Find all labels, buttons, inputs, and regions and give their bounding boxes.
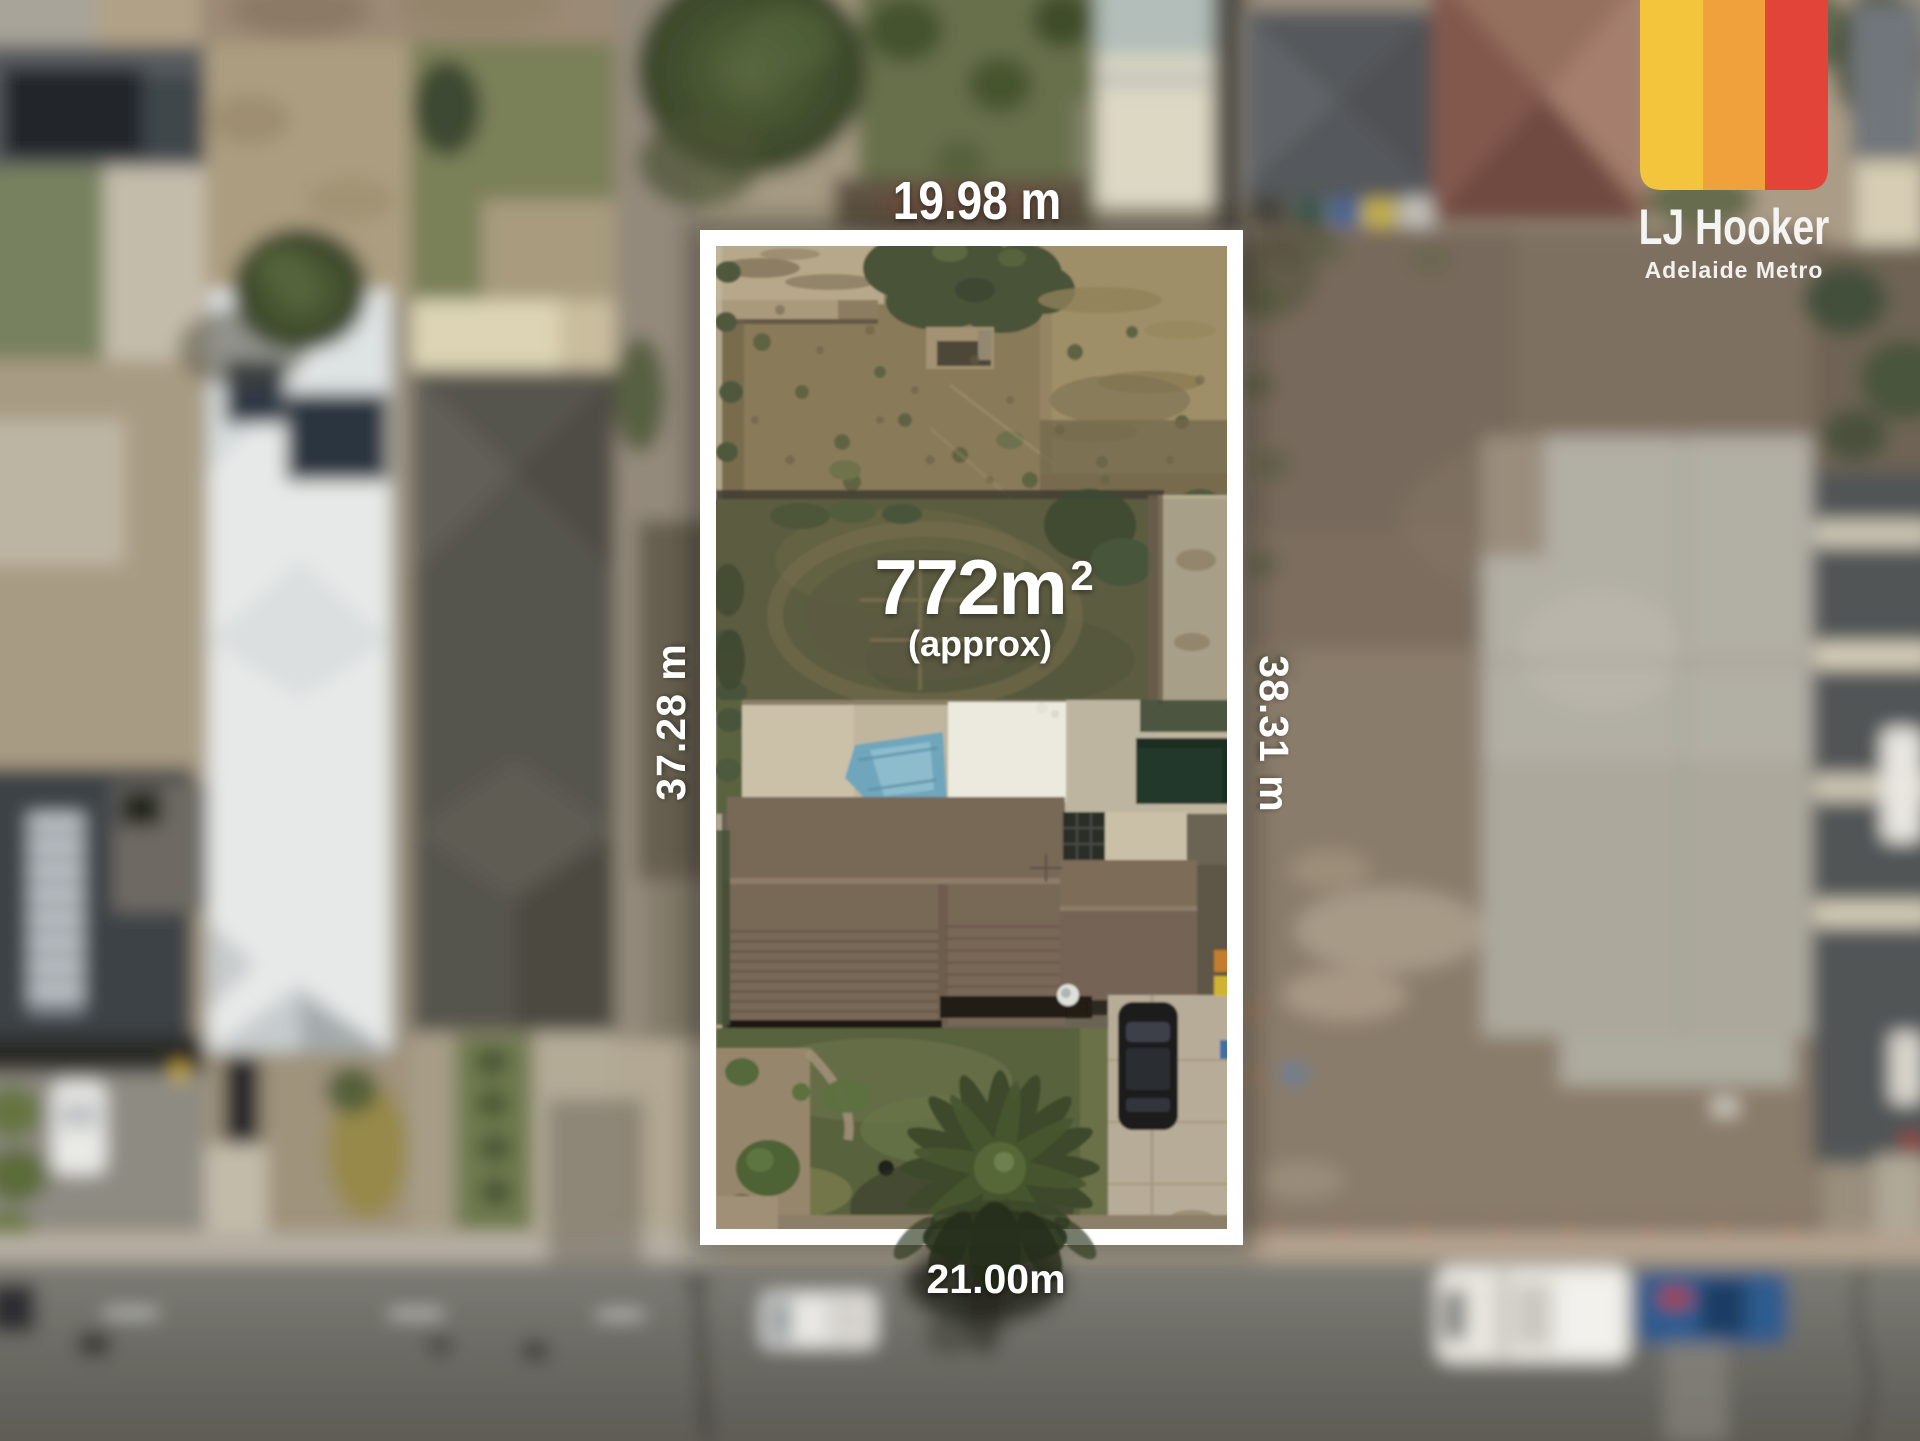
svg-text:2: 2 — [1070, 552, 1093, 599]
svg-text:38.31 m: 38.31 m — [1251, 655, 1297, 812]
svg-text:Adelaide Metro: Adelaide Metro — [1645, 257, 1824, 283]
svg-text:772m: 772m — [874, 543, 1066, 631]
svg-text:19.98 m: 19.98 m — [893, 171, 1061, 231]
svg-text:21.00m: 21.00m — [926, 1256, 1065, 1302]
svg-text:37.28 m: 37.28 m — [648, 643, 694, 800]
svg-text:(approx): (approx) — [908, 623, 1052, 664]
svg-text:LJ Hooker: LJ Hooker — [1639, 198, 1830, 255]
